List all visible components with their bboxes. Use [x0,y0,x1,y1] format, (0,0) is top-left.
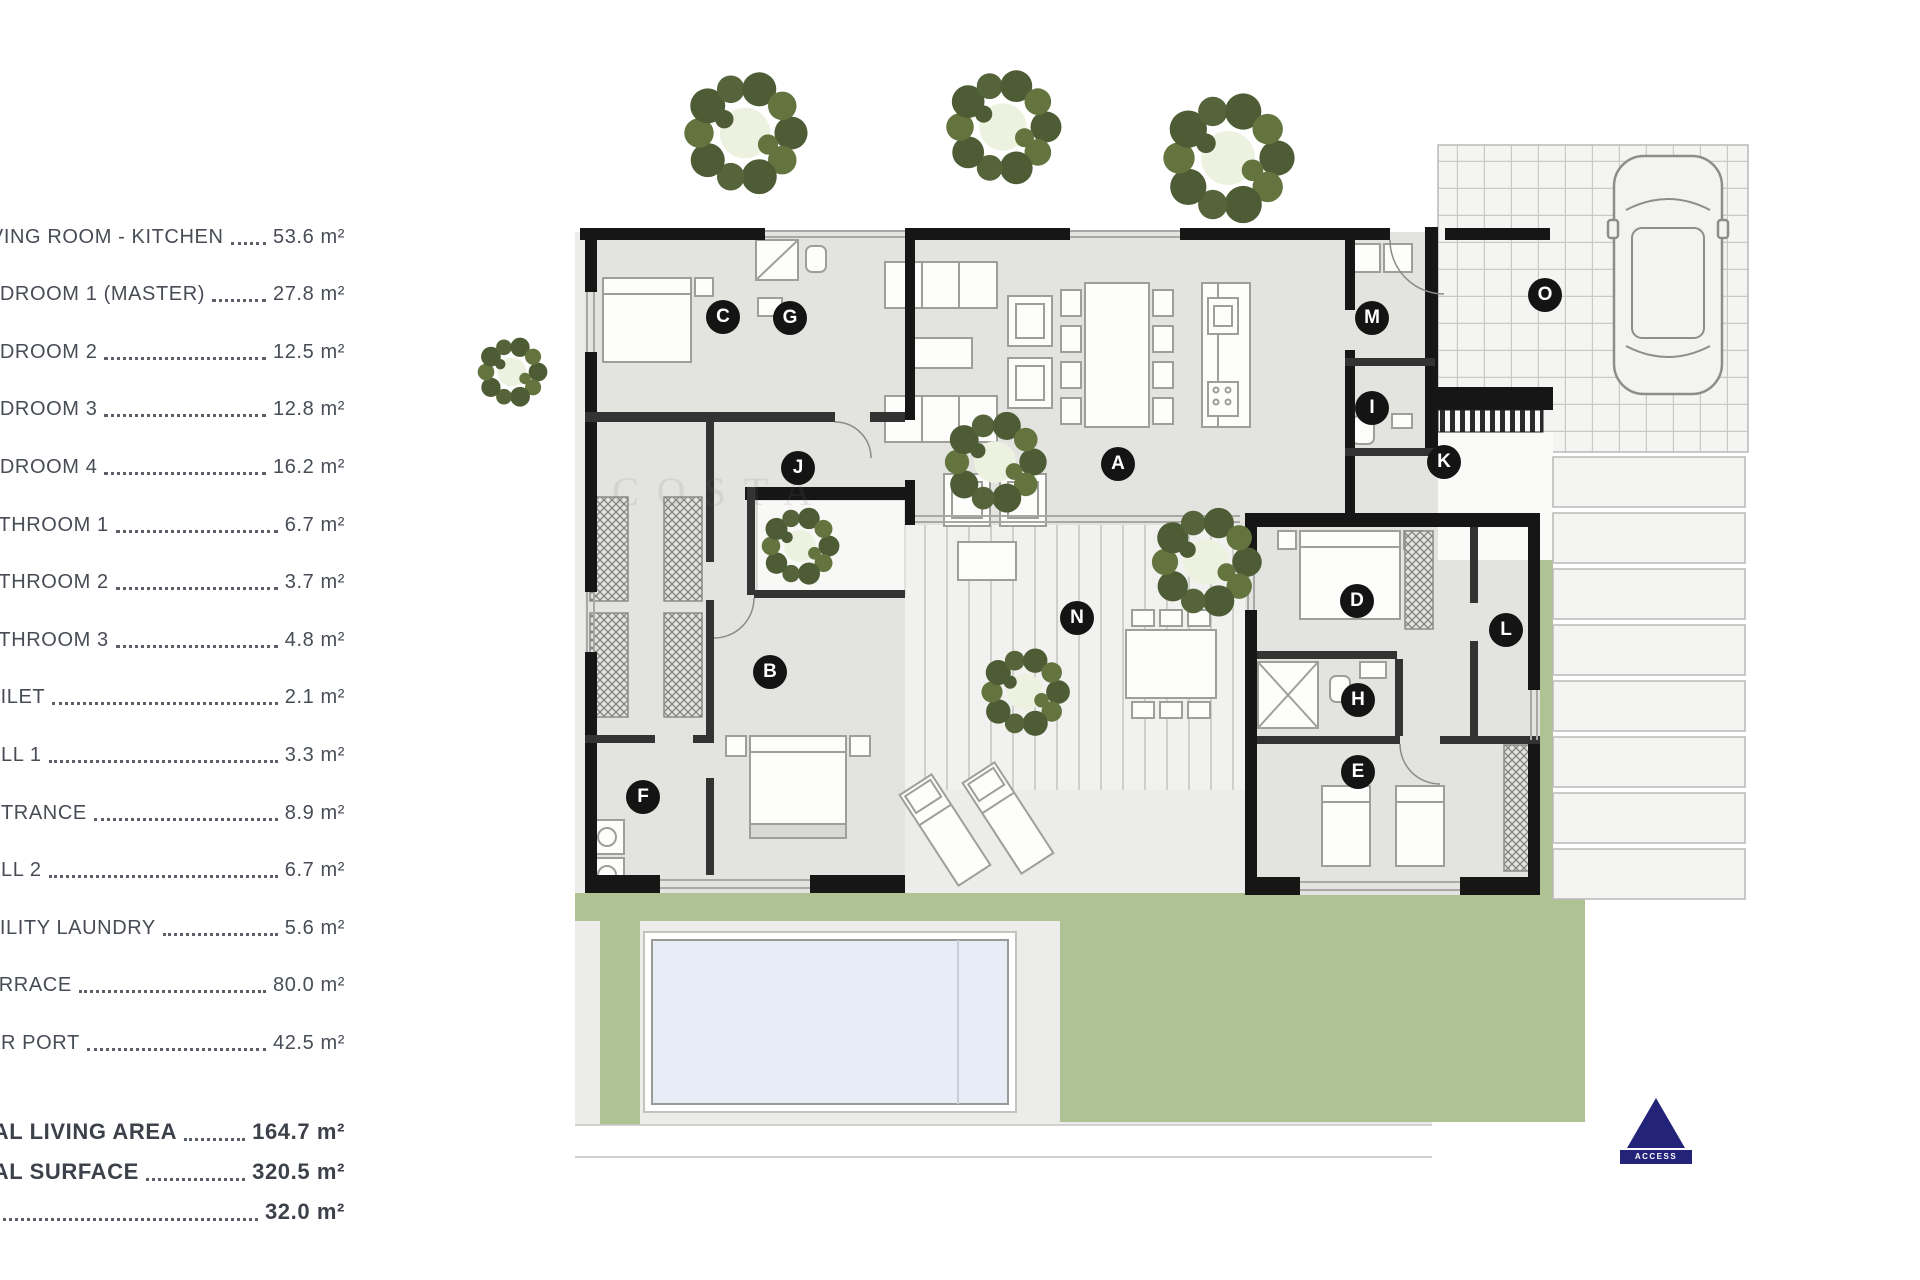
legend-dot-leader [212,299,266,302]
room-marker-o: O [1528,278,1562,312]
legend-value: 16.2 m² [273,456,345,479]
legend-dot-leader [116,587,278,590]
legend-row: BATHROOM 34.8 m² [0,610,345,668]
floor-plan-page: COSTA ABCDEFGHIJKLMNO LIVING ROOM - KITC… [0,0,1920,1280]
access-label: ACCESS [1620,1150,1692,1164]
legend-dot-leader [94,818,278,821]
legend-value: 6.7 m² [285,859,345,882]
legend-value: 320.5 m² [252,1159,345,1185]
legend-row: TERRACE80.0 m² [0,956,345,1014]
legend-dot-leader [0,1218,258,1221]
legend-value: 80.0 m² [273,974,345,997]
room-marker-k: K [1427,445,1461,479]
legend-value: 6.7 m² [285,514,345,537]
legend-dot-leader [104,414,266,417]
legend-row: TOILET2.1 m² [0,668,345,726]
legend-label: BATHROOM 3 [0,629,109,652]
legend-row: UTILITY LAUNDRY5.6 m² [0,898,345,956]
legend-row: BEDROOM 212.5 m² [0,322,345,380]
legend-row: BEDROOM 312.8 m² [0,380,345,438]
legend-dot-leader [49,875,278,878]
legend-row: HALL 13.3 m² [0,725,345,783]
room-marker-b: B [753,655,787,689]
legend-row: CAR PORT42.5 m² [0,1013,345,1071]
room-marker-e: E [1341,755,1375,789]
legend-row: TOTAL SURFACE320.5 m² [0,1153,345,1193]
access-marker: ACCESS [1620,1098,1692,1164]
legend-value: 8.9 m² [285,802,345,825]
legend-label: BEDROOM 2 [0,341,97,364]
legend-dot-leader [116,645,278,648]
legend-label: TOTAL LIVING AREA [0,1119,177,1145]
room-marker-g: G [773,301,807,335]
legend-row: BEDROOM 1 (MASTER)27.8 m² [0,265,345,323]
room-marker-m: M [1355,301,1389,335]
room-marker-i: I [1355,391,1389,425]
legend-value: 42.5 m² [273,1032,345,1055]
legend-value: 3.7 m² [285,571,345,594]
legend-label: TOTAL SURFACE [0,1159,139,1185]
legend-value: 12.8 m² [273,398,345,421]
legend-value: 32.0 m² [265,1199,345,1225]
legend-label: CAR PORT [0,1032,80,1055]
legend-row: BATHROOM 23.7 m² [0,553,345,611]
legend-value: 12.5 m² [273,341,345,364]
legend-row: ENTRANCE8.9 m² [0,783,345,841]
legend-dot-leader [79,990,266,993]
legend-dot-leader [163,933,278,936]
room-marker-c: C [706,300,740,334]
legend-value: 5.6 m² [285,917,345,940]
access-triangle-icon [1627,1098,1685,1148]
legend-label: TERRACE [0,974,72,997]
legend-value: 2.1 m² [285,686,345,709]
legend-label: LIVING ROOM - KITCHEN [0,226,224,249]
legend-value: 27.8 m² [273,283,345,306]
room-marker-f: F [626,780,660,814]
legend-dot-leader [104,357,266,360]
legend-label: HALL 1 [0,744,42,767]
legend-label: UTILITY LAUNDRY [0,917,156,940]
legend-dot-leader [87,1048,266,1051]
legend-label: BATHROOM 1 [0,514,109,537]
room-marker-j: J [781,451,815,485]
legend-dot-leader [146,1178,245,1181]
legend-label: TOILET [0,686,45,709]
room-marker-a: A [1101,447,1135,481]
legend-row: BEDROOM 416.2 m² [0,437,345,495]
legend-dot-leader [104,472,266,475]
legend-dot-leader [52,702,277,705]
room-marker-h: H [1341,683,1375,717]
room-marker-d: D [1340,584,1374,618]
legend-row: HALL 26.7 m² [0,841,345,899]
legend-value: 4.8 m² [285,629,345,652]
legend-row: LIVING ROOM - KITCHEN53.6 m² [0,207,345,265]
legend-value: 164.7 m² [252,1119,345,1145]
legend-row: 32.0 m² [0,1193,345,1233]
legend-dot-leader [184,1138,245,1141]
legend-value: 53.6 m² [273,226,345,249]
legend-label: BEDROOM 1 (MASTER) [0,283,205,306]
legend-row: TOTAL LIVING AREA164.7 m² [0,1113,345,1153]
area-legend: LIVING ROOM - KITCHEN53.6 m²BEDROOM 1 (M… [0,207,345,1233]
legend-dot-leader [49,760,278,763]
legend-label: BEDROOM 4 [0,456,97,479]
legend-label: BATHROOM 2 [0,571,109,594]
legend-value: 3.3 m² [285,744,345,767]
legend-label: ENTRANCE [0,802,87,825]
room-marker-n: N [1060,601,1094,635]
legend-dot-leader [116,530,278,533]
room-marker-l: L [1489,613,1523,647]
legend-label: BEDROOM 3 [0,398,97,421]
legend-dot-leader [231,242,266,245]
legend-row: BATHROOM 16.7 m² [0,495,345,553]
legend-label: HALL 2 [0,859,42,882]
